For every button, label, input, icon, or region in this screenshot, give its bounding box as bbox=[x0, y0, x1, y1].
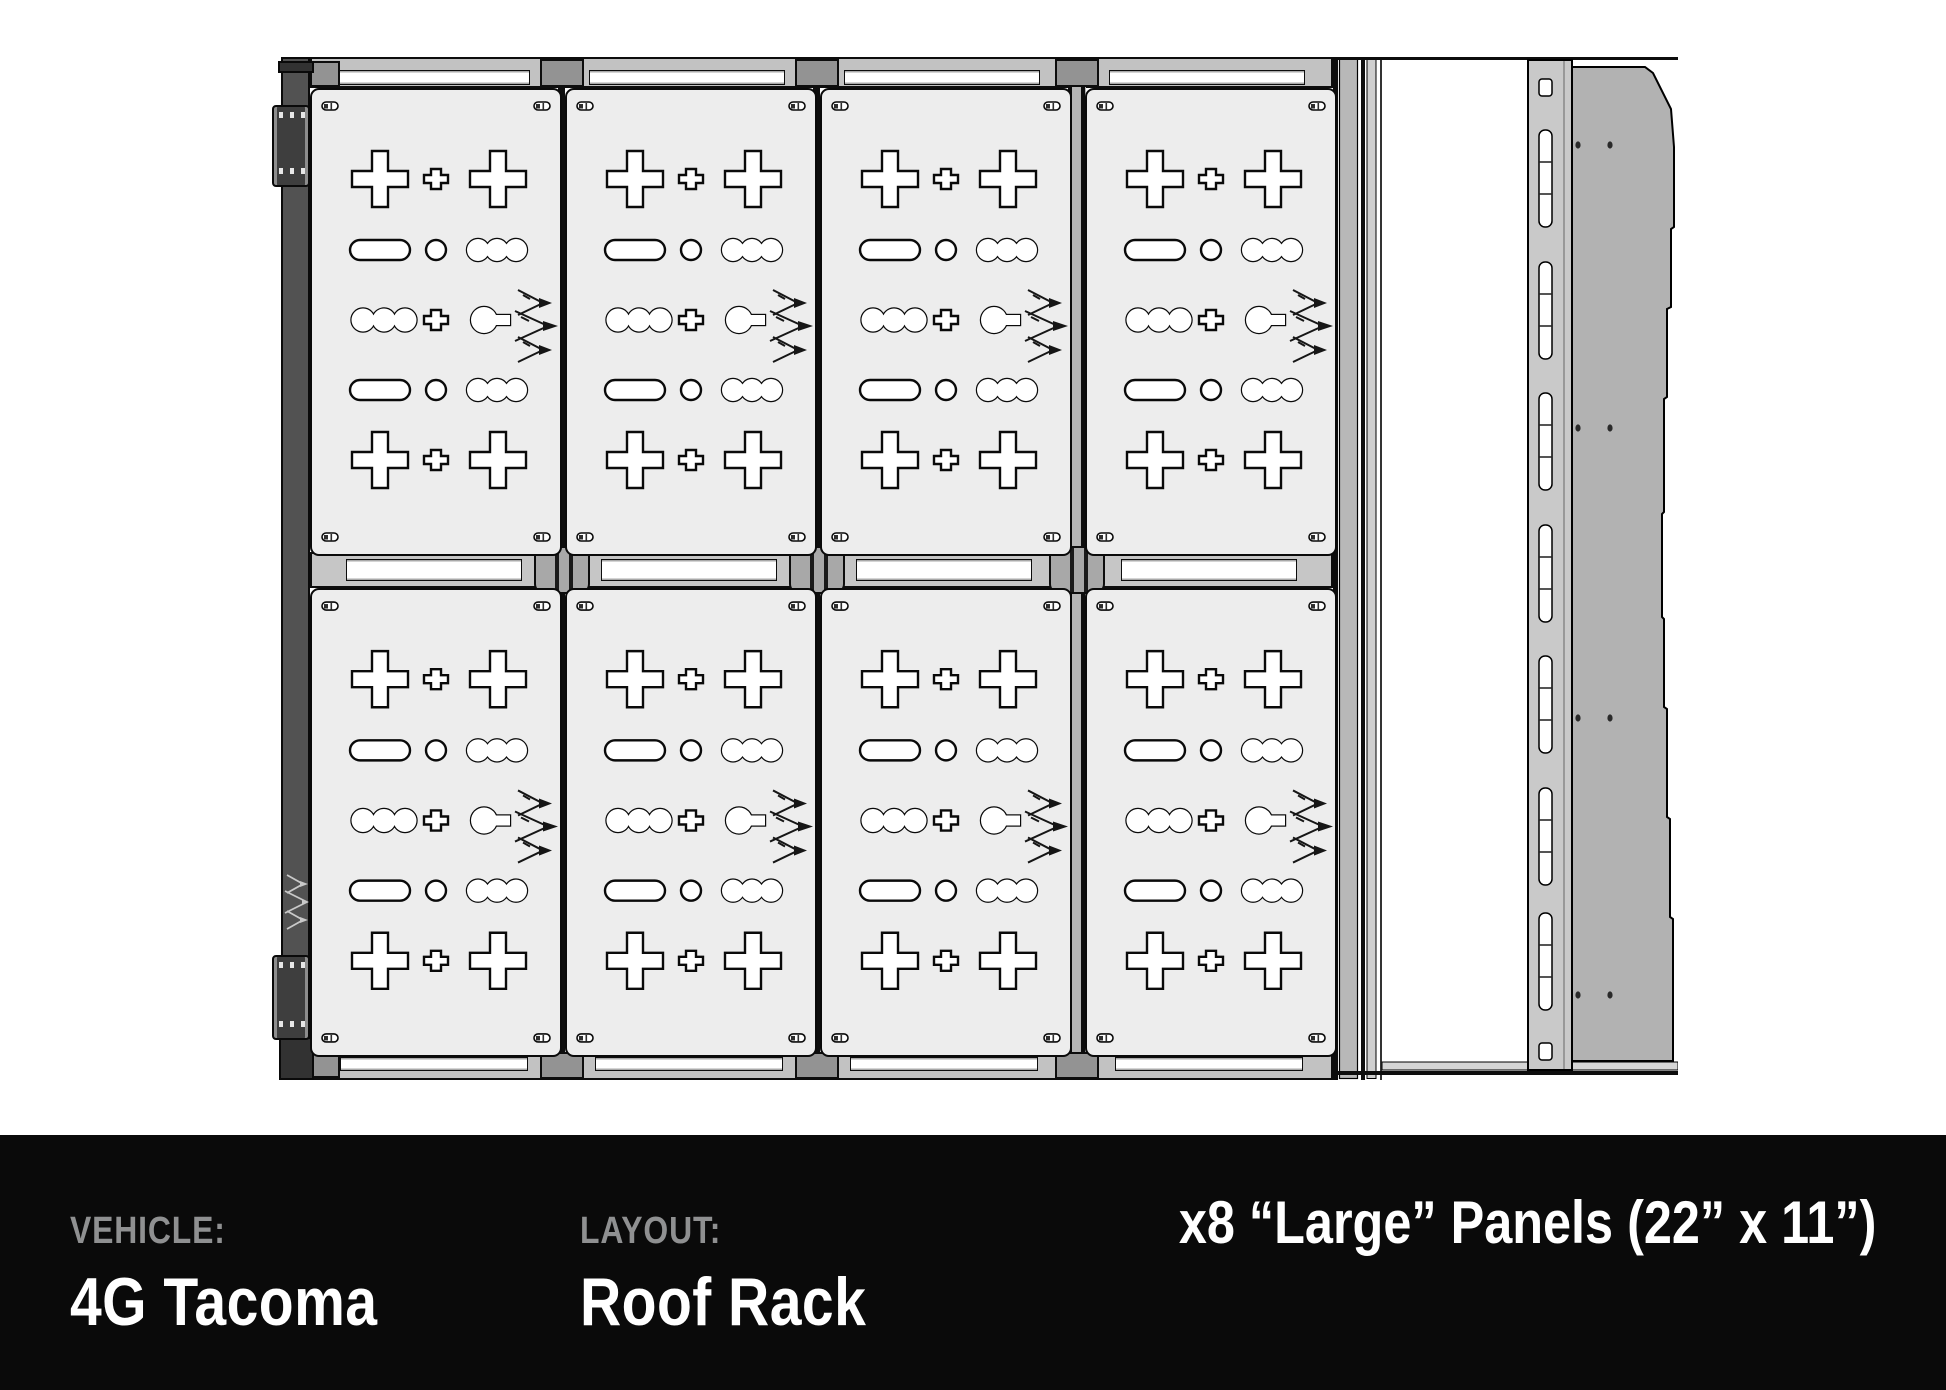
mini-plus-cutout bbox=[679, 951, 703, 971]
keyhole-cutout bbox=[471, 307, 510, 333]
pill-cutout bbox=[350, 881, 410, 901]
layout-label: LAYOUT: bbox=[580, 1212, 721, 1250]
roof-rack-drawing bbox=[281, 57, 1678, 1080]
mountain-logo-icon bbox=[1290, 290, 1333, 362]
panel-cutouts bbox=[822, 90, 1070, 554]
plus-cutout bbox=[725, 151, 781, 207]
plus-cutout bbox=[725, 432, 781, 488]
mini-plus-cutout bbox=[679, 169, 703, 189]
mini-plus-cutout bbox=[679, 669, 703, 689]
brand-mark-icon bbox=[283, 872, 309, 942]
panel bbox=[820, 588, 1072, 1057]
plus-cutout bbox=[470, 933, 526, 989]
circle-cutout bbox=[681, 240, 701, 260]
keyhole-cutout bbox=[981, 807, 1020, 833]
top-frame-line bbox=[1333, 57, 1678, 60]
pill-cutout bbox=[1125, 240, 1185, 260]
wavy-slot-cutout bbox=[722, 239, 782, 261]
plus-cutout bbox=[352, 651, 408, 707]
panel-count-summary: x8 “Large” Panels (22” x 11”) bbox=[1178, 1193, 1876, 1253]
mini-plus-cutout bbox=[1199, 450, 1223, 470]
wavy-slot-cutout bbox=[467, 379, 527, 401]
keyhole-cutout bbox=[726, 807, 765, 833]
hinge-bracket-top bbox=[272, 105, 310, 187]
crossbar-inset-strip bbox=[1121, 559, 1297, 581]
plus-cutout bbox=[980, 933, 1036, 989]
circle-cutout bbox=[426, 881, 446, 901]
plus-cutout bbox=[1127, 933, 1183, 989]
plus-cutout bbox=[470, 432, 526, 488]
pill-cutout bbox=[860, 881, 920, 901]
plus-cutout bbox=[1127, 151, 1183, 207]
plus-cutout bbox=[980, 651, 1036, 707]
plus-cutout bbox=[1245, 432, 1301, 488]
circle-cutout bbox=[1201, 881, 1221, 901]
plus-cutout bbox=[470, 151, 526, 207]
top-bar-inset-strip bbox=[334, 70, 530, 85]
crossbar-inset-strip bbox=[346, 559, 522, 581]
mountain-logo-icon bbox=[515, 790, 558, 862]
plus-cutout bbox=[1245, 151, 1301, 207]
left-bar-top-cap bbox=[278, 61, 314, 73]
pill-cutout bbox=[350, 380, 410, 400]
plus-cutout bbox=[607, 151, 663, 207]
pill-cutout bbox=[605, 380, 665, 400]
wavy-slot-cutout bbox=[607, 309, 672, 332]
wavy-slot-cutout bbox=[352, 809, 417, 832]
bottom-bar-inset-strip bbox=[1115, 1057, 1303, 1071]
right-rail-assembly bbox=[1333, 57, 1678, 1080]
mini-plus-cutout bbox=[934, 951, 958, 971]
pill-cutout bbox=[605, 881, 665, 901]
wavy-slot-cutout bbox=[722, 379, 782, 401]
panel bbox=[310, 88, 562, 556]
mini-plus-cutout bbox=[1199, 310, 1223, 330]
mini-plus-cutout bbox=[424, 310, 448, 330]
plus-cutout bbox=[980, 432, 1036, 488]
crossbar-inset-strip bbox=[856, 559, 1032, 581]
mountain-logo-icon bbox=[770, 790, 813, 862]
mountain-logo-icon bbox=[515, 290, 558, 362]
circle-cutout bbox=[426, 740, 446, 760]
plus-cutout bbox=[352, 432, 408, 488]
plus-cutout bbox=[352, 151, 408, 207]
keyhole-cutout bbox=[726, 307, 765, 333]
circle-cutout bbox=[936, 380, 956, 400]
top-bar-connector bbox=[310, 61, 340, 87]
plus-cutout bbox=[1127, 432, 1183, 488]
panel bbox=[1085, 88, 1337, 556]
wavy-slot-cutout bbox=[722, 739, 782, 761]
footer-bar: VEHICLE: 4G Tacoma LAYOUT: Roof Rack x8 … bbox=[0, 1135, 1946, 1390]
circle-cutout bbox=[936, 740, 956, 760]
wavy-slot-cutout bbox=[977, 880, 1037, 902]
circle-cutout bbox=[426, 380, 446, 400]
bottom-bar-inset-strip bbox=[850, 1057, 1038, 1071]
pill-cutout bbox=[1125, 740, 1185, 760]
wavy-slot-cutout bbox=[977, 379, 1037, 401]
top-bar-connector bbox=[540, 59, 584, 87]
plus-cutout bbox=[1245, 651, 1301, 707]
vehicle-block: VEHICLE: 4G Tacoma bbox=[70, 1212, 436, 1336]
panel-cutouts bbox=[822, 590, 1070, 1055]
panel-cutouts bbox=[567, 90, 815, 554]
circle-cutout bbox=[681, 740, 701, 760]
panel-cutouts bbox=[1087, 590, 1335, 1055]
panel-cutouts bbox=[312, 590, 560, 1055]
mountain-logo-icon bbox=[1290, 790, 1333, 862]
mini-plus-cutout bbox=[679, 810, 703, 830]
circle-cutout bbox=[681, 380, 701, 400]
keyhole-cutout bbox=[981, 307, 1020, 333]
circle-cutout bbox=[681, 881, 701, 901]
wavy-slot-cutout bbox=[1242, 379, 1302, 401]
mini-plus-cutout bbox=[424, 951, 448, 971]
vehicle-value: 4G Tacoma bbox=[70, 1268, 377, 1336]
plus-cutout bbox=[862, 651, 918, 707]
mountain-logo-icon bbox=[770, 290, 813, 362]
wavy-slot-cutout bbox=[467, 239, 527, 261]
mini-plus-cutout bbox=[424, 450, 448, 470]
wavy-slot-cutout bbox=[1127, 309, 1192, 332]
panel bbox=[820, 88, 1072, 556]
mini-plus-cutout bbox=[424, 169, 448, 189]
vehicle-label: VEHICLE: bbox=[70, 1212, 226, 1250]
pill-cutout bbox=[1125, 380, 1185, 400]
wavy-slot-cutout bbox=[862, 809, 927, 832]
left-bar-bottom-cap bbox=[279, 1037, 314, 1080]
mini-plus-cutout bbox=[934, 310, 958, 330]
mini-plus-cutout bbox=[424, 810, 448, 830]
plus-cutout bbox=[607, 432, 663, 488]
keyhole-cutout bbox=[471, 807, 510, 833]
pill-cutout bbox=[860, 740, 920, 760]
mountain-logo-icon bbox=[1025, 290, 1068, 362]
plus-cutout bbox=[725, 651, 781, 707]
circle-cutout bbox=[936, 881, 956, 901]
circle-cutout bbox=[1201, 740, 1221, 760]
plus-cutout bbox=[607, 933, 663, 989]
pill-cutout bbox=[350, 740, 410, 760]
plus-cutout bbox=[980, 151, 1036, 207]
mountain-logo-icon bbox=[1025, 790, 1068, 862]
plus-cutout bbox=[352, 933, 408, 989]
layout-value: Roof Rack bbox=[580, 1268, 866, 1336]
hinge-bracket-bottom bbox=[272, 955, 310, 1040]
panel bbox=[565, 88, 817, 556]
wavy-slot-cutout bbox=[977, 739, 1037, 761]
pill-cutout bbox=[605, 740, 665, 760]
plus-cutout bbox=[862, 432, 918, 488]
pill-cutout bbox=[860, 240, 920, 260]
keyhole-cutout bbox=[1246, 307, 1285, 333]
mini-plus-cutout bbox=[934, 169, 958, 189]
wavy-slot-cutout bbox=[1242, 739, 1302, 761]
plus-cutout bbox=[470, 651, 526, 707]
circle-cutout bbox=[1201, 240, 1221, 260]
panel-cutouts bbox=[567, 590, 815, 1055]
panel bbox=[565, 588, 817, 1057]
layout-block: LAYOUT: Roof Rack bbox=[580, 1212, 921, 1336]
bottom-bar-inset-strip bbox=[595, 1057, 783, 1071]
plus-cutout bbox=[1127, 651, 1183, 707]
top-bar-connector bbox=[1055, 59, 1099, 87]
wavy-slot-cutout bbox=[1242, 880, 1302, 902]
pill-cutout bbox=[860, 380, 920, 400]
mini-plus-cutout bbox=[934, 810, 958, 830]
panel bbox=[310, 588, 562, 1057]
plus-cutout bbox=[1245, 933, 1301, 989]
pill-cutout bbox=[605, 240, 665, 260]
panel-cutouts bbox=[312, 90, 560, 554]
keyhole-cutout bbox=[1246, 807, 1285, 833]
mini-plus-cutout bbox=[679, 450, 703, 470]
panel bbox=[1085, 588, 1337, 1057]
roof-flap bbox=[1572, 67, 1674, 1061]
wavy-slot-cutout bbox=[1127, 809, 1192, 832]
drawing-area bbox=[0, 0, 1946, 1135]
wavy-slot-cutout bbox=[1242, 239, 1302, 261]
wavy-slot-cutout bbox=[862, 309, 927, 332]
plus-cutout bbox=[862, 933, 918, 989]
plus-cutout bbox=[862, 151, 918, 207]
wavy-slot-cutout bbox=[722, 880, 782, 902]
pill-cutout bbox=[350, 240, 410, 260]
mini-plus-cutout bbox=[679, 310, 703, 330]
wavy-slot-cutout bbox=[352, 309, 417, 332]
mini-plus-cutout bbox=[1199, 810, 1223, 830]
plus-cutout bbox=[725, 933, 781, 989]
bottom-frame-line bbox=[1333, 1071, 1678, 1075]
wavy-slot-cutout bbox=[467, 739, 527, 761]
wavy-slot-cutout bbox=[977, 239, 1037, 261]
circle-cutout bbox=[426, 240, 446, 260]
panel-cutouts bbox=[1087, 90, 1335, 554]
wavy-slot-cutout bbox=[607, 809, 672, 832]
mini-plus-cutout bbox=[934, 450, 958, 470]
wavy-slot-cutout bbox=[467, 880, 527, 902]
bottom-bar-inset-strip bbox=[340, 1057, 528, 1071]
top-bar-connector bbox=[795, 59, 839, 87]
top-bar-inset-strip bbox=[1109, 70, 1305, 85]
mini-plus-cutout bbox=[1199, 669, 1223, 689]
plus-cutout bbox=[607, 651, 663, 707]
crossbar-inset-strip bbox=[601, 559, 777, 581]
mini-plus-cutout bbox=[1199, 951, 1223, 971]
top-bar-inset-strip bbox=[589, 70, 785, 85]
pill-cutout bbox=[1125, 881, 1185, 901]
mini-plus-cutout bbox=[424, 669, 448, 689]
mini-plus-cutout bbox=[934, 669, 958, 689]
mini-plus-cutout bbox=[1199, 169, 1223, 189]
top-bar-inset-strip bbox=[844, 70, 1040, 85]
circle-cutout bbox=[936, 240, 956, 260]
circle-cutout bbox=[1201, 380, 1221, 400]
